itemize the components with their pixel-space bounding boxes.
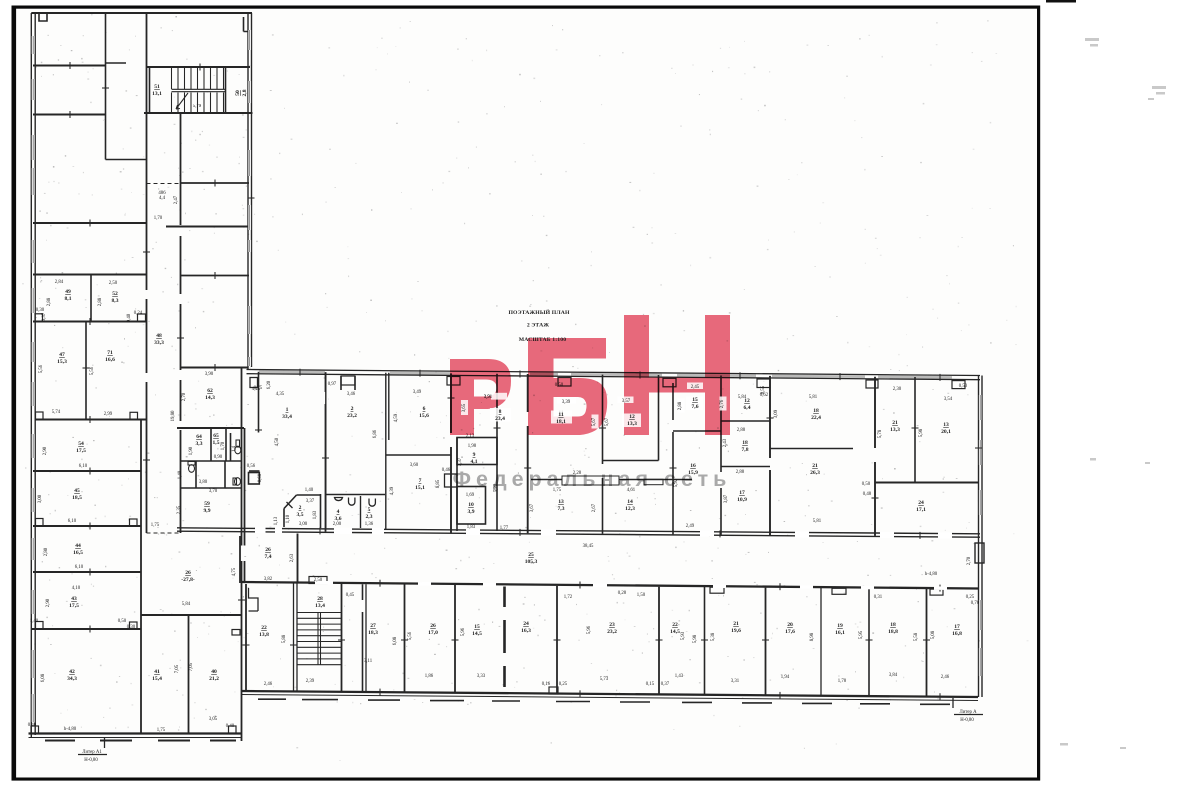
svg-text:5,84: 5,84 <box>738 395 747 400</box>
svg-text:2,45: 2,45 <box>691 385 700 390</box>
svg-text:15,6: 15,6 <box>419 413 429 419</box>
svg-text:23,4: 23,4 <box>495 416 505 422</box>
svg-text:64: 64 <box>196 434 202 440</box>
svg-text:105,3: 105,3 <box>525 559 538 565</box>
svg-text:23,2: 23,2 <box>347 413 357 419</box>
svg-text:4,39: 4,39 <box>390 486 395 495</box>
svg-text:3,39: 3,39 <box>562 400 571 405</box>
svg-text:0,50: 0,50 <box>959 384 968 389</box>
svg-text:5,98: 5,98 <box>919 428 924 437</box>
svg-text:16,5: 16,5 <box>73 550 83 556</box>
svg-text:15,4: 15,4 <box>152 676 162 682</box>
svg-text:5,58: 5,58 <box>914 632 919 641</box>
svg-text:0,55: 0,55 <box>761 385 766 394</box>
svg-text:1,77: 1,77 <box>500 526 509 531</box>
svg-text:3,09: 3,09 <box>774 409 779 418</box>
svg-text:5,78: 5,78 <box>878 429 883 438</box>
svg-text:13,1: 13,1 <box>152 91 162 97</box>
svg-text:33,4: 33,4 <box>282 414 292 420</box>
svg-text:1,36: 1,36 <box>365 522 374 527</box>
svg-text:0,68: 0,68 <box>258 473 263 482</box>
svg-text:3,9: 3,9 <box>468 509 475 515</box>
svg-text:41: 41 <box>154 669 160 675</box>
svg-text:26: 26 <box>185 570 191 576</box>
svg-text:5,84: 5,84 <box>182 602 191 607</box>
svg-text:26: 26 <box>430 623 436 629</box>
svg-text:14: 14 <box>627 499 633 505</box>
svg-text:38,45: 38,45 <box>583 544 594 549</box>
svg-text:0,37: 0,37 <box>661 682 670 687</box>
svg-text:3,37: 3,37 <box>458 457 463 466</box>
svg-text:23: 23 <box>609 622 615 628</box>
svg-text:2,88: 2,88 <box>98 297 103 306</box>
svg-text:19,80: 19,80 <box>171 410 176 421</box>
svg-text:3,80: 3,80 <box>199 480 208 485</box>
svg-text:7: 7 <box>419 478 422 484</box>
svg-text:18,1: 18,1 <box>556 419 566 425</box>
svg-text:3,65: 3,65 <box>462 403 467 412</box>
svg-text:2,30: 2,30 <box>893 387 902 392</box>
svg-text:5,88: 5,88 <box>282 634 287 643</box>
svg-text:21: 21 <box>892 420 898 426</box>
svg-text:2,43: 2,43 <box>723 438 728 447</box>
svg-text:2,90: 2,90 <box>43 446 48 455</box>
svg-text:0,48: 0,48 <box>863 492 872 497</box>
svg-text:-27,8-: -27,8- <box>181 577 195 583</box>
svg-text:8: 8 <box>499 409 502 415</box>
svg-text:2,47: 2,47 <box>174 195 179 204</box>
svg-text:1,10: 1,10 <box>286 514 291 523</box>
svg-text:3,00: 3,00 <box>38 494 43 503</box>
svg-text:3,31: 3,31 <box>731 679 740 684</box>
svg-text:5,96: 5,96 <box>587 625 592 634</box>
svg-text:19: 19 <box>837 623 843 629</box>
svg-text:47: 47 <box>59 352 65 358</box>
svg-text:1,72: 1,72 <box>564 595 573 600</box>
svg-text:13,3: 13,3 <box>627 421 637 427</box>
svg-text:5,73: 5,73 <box>600 677 609 682</box>
svg-text:1,40: 1,40 <box>305 488 314 493</box>
svg-text:7,8: 7,8 <box>742 447 749 453</box>
svg-text:14,5: 14,5 <box>472 631 482 637</box>
svg-text:h-4,80: h-4,80 <box>925 572 938 577</box>
svg-text:50: 50 <box>235 90 241 96</box>
svg-text:17,6: 17,6 <box>785 629 795 635</box>
svg-text:2,00: 2,00 <box>333 522 342 527</box>
svg-text:28: 28 <box>317 596 323 602</box>
svg-text:h-4,80: h-4,80 <box>64 727 77 732</box>
svg-text:2,46: 2,46 <box>264 682 273 687</box>
svg-text:0,70: 0,70 <box>971 601 980 606</box>
svg-text:45: 45 <box>74 488 80 494</box>
svg-text:6,08: 6,08 <box>393 636 398 645</box>
svg-text:5,74: 5,74 <box>52 410 61 415</box>
svg-text:3,84: 3,84 <box>889 673 898 678</box>
svg-text:17,0: 17,0 <box>428 630 438 636</box>
svg-text:3,5: 3,5 <box>297 512 304 518</box>
svg-text:2,3: 2,3 <box>366 514 373 520</box>
svg-text:11: 11 <box>558 412 563 418</box>
svg-text:9: 9 <box>473 452 476 458</box>
svg-text:0,25: 0,25 <box>559 682 568 687</box>
svg-text:2,35: 2,35 <box>177 505 182 514</box>
svg-text:2,88: 2,88 <box>736 470 745 475</box>
svg-text:0,40: 0,40 <box>28 723 37 728</box>
svg-text:2,88: 2,88 <box>47 297 52 306</box>
svg-text:4,25: 4,25 <box>252 387 261 392</box>
svg-text:33,3: 33,3 <box>154 340 164 346</box>
svg-text:6,20: 6,20 <box>267 380 272 389</box>
svg-text:4,50: 4,50 <box>275 437 280 446</box>
svg-text:1,4: 1,4 <box>232 445 237 452</box>
svg-text:3,49: 3,49 <box>413 390 422 395</box>
svg-text:3,54: 3,54 <box>944 397 953 402</box>
svg-text:1,75: 1,75 <box>157 728 166 733</box>
svg-text:15,1: 15,1 <box>415 485 425 491</box>
svg-text:1,86: 1,86 <box>425 674 434 679</box>
svg-text:1,98: 1,98 <box>468 444 477 449</box>
svg-text:0,24: 0,24 <box>134 311 143 316</box>
svg-text:1,40: 1,40 <box>30 619 39 624</box>
svg-text:2: 2 <box>299 505 302 511</box>
svg-text:24: 24 <box>918 500 924 506</box>
svg-text:26: 26 <box>265 547 271 553</box>
svg-text:2 ЭТАЖ: 2 ЭТАЖ <box>527 323 549 329</box>
svg-text:21: 21 <box>812 463 818 469</box>
svg-text:34,3: 34,3 <box>67 676 77 682</box>
svg-text:5,79: 5,79 <box>193 104 202 109</box>
svg-text:1,43: 1,43 <box>675 674 684 679</box>
svg-text:13: 13 <box>943 422 949 428</box>
svg-text:6: 6 <box>423 406 426 412</box>
svg-text:5,56: 5,56 <box>90 366 95 375</box>
svg-text:0,97: 0,97 <box>328 382 337 387</box>
svg-text:1,75: 1,75 <box>151 523 160 528</box>
svg-text:13,4: 13,4 <box>315 603 325 609</box>
svg-text:51: 51 <box>154 84 160 90</box>
svg-text:6,4: 6,4 <box>744 405 751 411</box>
svg-text:0,16: 0,16 <box>542 682 551 687</box>
svg-text:18: 18 <box>813 408 819 414</box>
svg-text:1: 1 <box>286 407 289 413</box>
svg-text:3,3: 3,3 <box>196 441 203 447</box>
svg-text:3,70: 3,70 <box>209 489 218 494</box>
svg-text:1,94: 1,94 <box>781 675 790 680</box>
svg-text:17,1: 17,1 <box>916 507 926 513</box>
svg-text:9,9: 9,9 <box>204 508 211 514</box>
svg-text:22,4: 22,4 <box>811 415 821 421</box>
svg-text:4,10: 4,10 <box>72 586 81 591</box>
svg-text:3,90: 3,90 <box>205 372 214 377</box>
svg-text:6,10: 6,10 <box>75 565 84 570</box>
svg-text:8,1: 8,1 <box>65 296 72 302</box>
svg-text:8,3: 8,3 <box>112 298 119 304</box>
svg-text:3,11: 3,11 <box>364 659 373 664</box>
svg-text:2,46: 2,46 <box>941 675 950 680</box>
svg-text:20: 20 <box>787 622 793 628</box>
svg-text:6,10: 6,10 <box>79 464 88 469</box>
svg-text:5,81: 5,81 <box>809 395 818 400</box>
svg-text:0,31: 0,31 <box>874 595 883 600</box>
svg-text:Федеральная сеть: Федеральная сеть <box>453 467 732 491</box>
svg-text:65: 65 <box>213 433 219 439</box>
svg-text:0,25: 0,25 <box>966 595 975 600</box>
svg-text:2,99: 2,99 <box>104 412 113 417</box>
svg-text:18: 18 <box>890 622 896 628</box>
svg-text:2,88: 2,88 <box>737 428 746 433</box>
svg-text:48: 48 <box>156 333 162 339</box>
svg-text:3,05: 3,05 <box>209 717 218 722</box>
svg-text:19,6: 19,6 <box>731 628 741 634</box>
svg-text:5,08: 5,08 <box>931 630 936 639</box>
svg-text:22: 22 <box>672 622 678 628</box>
svg-text:10: 10 <box>468 502 474 508</box>
svg-text:17: 17 <box>954 624 960 630</box>
svg-text:7,6: 7,6 <box>692 404 699 410</box>
svg-text:25: 25 <box>528 552 534 558</box>
svg-text:17,5: 17,5 <box>76 448 86 454</box>
svg-text:2,88: 2,88 <box>678 401 683 410</box>
svg-text:4,4: 4,4 <box>159 196 166 201</box>
svg-text:2,8: 2,8 <box>242 89 248 96</box>
svg-text:0,40: 0,40 <box>127 313 132 322</box>
svg-text:1,78: 1,78 <box>838 679 847 684</box>
svg-text:16,1: 16,1 <box>835 630 845 636</box>
svg-text:18,5: 18,5 <box>72 495 82 501</box>
svg-text:4,1: 4,1 <box>471 459 478 465</box>
svg-text:14,5: 14,5 <box>670 629 680 635</box>
svg-text:3,57: 3,57 <box>622 399 631 404</box>
svg-text:1,83: 1,83 <box>467 525 476 530</box>
svg-text:1,90: 1,90 <box>189 446 194 455</box>
svg-text:13,8: 13,8 <box>259 632 269 638</box>
svg-text:2,50: 2,50 <box>109 281 118 286</box>
svg-text:0,15: 0,15 <box>646 682 655 687</box>
svg-text:59: 59 <box>204 501 210 507</box>
svg-text:2,70: 2,70 <box>182 392 187 401</box>
svg-text:2,67: 2,67 <box>592 503 597 512</box>
svg-text:24: 24 <box>523 621 529 627</box>
svg-text:7,4: 7,4 <box>265 554 272 560</box>
svg-text:МАСШТАБ 1:100: МАСШТАБ 1:100 <box>519 337 567 343</box>
svg-text:71: 71 <box>107 350 113 356</box>
svg-text:0,46: 0,46 <box>442 468 451 473</box>
svg-text:18: 18 <box>742 440 748 446</box>
svg-text:2,90: 2,90 <box>46 598 51 607</box>
svg-text:1,50: 1,50 <box>637 593 646 598</box>
svg-text:1,40: 1,40 <box>178 470 183 479</box>
svg-text:17,5: 17,5 <box>69 603 79 609</box>
svg-text:6,10: 6,10 <box>68 519 77 524</box>
svg-text:0,50: 0,50 <box>862 482 871 487</box>
svg-text:43: 43 <box>71 596 77 602</box>
svg-text:0,56: 0,56 <box>247 464 256 469</box>
svg-text:16,8: 16,8 <box>952 631 962 637</box>
svg-text:18,3: 18,3 <box>368 630 378 636</box>
svg-text:Литер А1: Литер А1 <box>82 750 102 755</box>
svg-text:3,33: 3,33 <box>477 674 486 679</box>
svg-text:2: 2 <box>351 406 354 412</box>
svg-text:2,39: 2,39 <box>306 679 315 684</box>
svg-text:5,93: 5,93 <box>681 631 686 640</box>
svg-text:16,3: 16,3 <box>521 628 531 634</box>
svg-text:3,82: 3,82 <box>264 577 273 582</box>
svg-text:8,98: 8,98 <box>810 632 815 641</box>
svg-text:2,50: 2,50 <box>314 578 323 583</box>
svg-text:1,5: 1,5 <box>213 440 220 446</box>
svg-text:0,90: 0,90 <box>214 455 223 460</box>
svg-text:12,3: 12,3 <box>625 506 635 512</box>
svg-text:8,85: 8,85 <box>436 479 441 488</box>
svg-text:5,95: 5,95 <box>859 630 864 639</box>
svg-text:5,56: 5,56 <box>39 364 44 373</box>
svg-text:13: 13 <box>558 499 564 505</box>
svg-text:15: 15 <box>692 397 698 403</box>
svg-text:15: 15 <box>474 624 480 630</box>
svg-text:4,75: 4,75 <box>232 567 237 576</box>
svg-text:ПОЭТАЖНЫЙ ПЛАН: ПОЭТАЖНЫЙ ПЛАН <box>508 308 570 316</box>
svg-text:20,1: 20,1 <box>941 429 951 435</box>
svg-text:7,3: 7,3 <box>558 506 565 512</box>
svg-text:26,3: 26,3 <box>810 470 820 476</box>
svg-text:40: 40 <box>211 669 217 675</box>
svg-text:5,38: 5,38 <box>711 632 716 641</box>
svg-text:42: 42 <box>69 669 75 675</box>
svg-text:54: 54 <box>78 441 84 447</box>
svg-text:Литер А: Литер А <box>959 710 977 715</box>
svg-text:23,2: 23,2 <box>607 629 617 635</box>
svg-text:5,81: 5,81 <box>813 519 822 524</box>
svg-text:18,8: 18,8 <box>888 629 898 635</box>
svg-text:3,37: 3,37 <box>306 499 315 504</box>
svg-text:16,6: 16,6 <box>105 357 115 363</box>
svg-text:62: 62 <box>207 388 213 394</box>
svg-text:2,80: 2,80 <box>44 547 49 556</box>
svg-text:0,37: 0,37 <box>42 312 47 321</box>
svg-text:21: 21 <box>733 621 739 627</box>
svg-text:6,86: 6,86 <box>373 429 378 438</box>
svg-text:3,91: 3,91 <box>484 395 493 400</box>
svg-text:52: 52 <box>112 291 118 297</box>
svg-text:6,08: 6,08 <box>41 673 46 682</box>
svg-text:14,3: 14,3 <box>205 395 215 401</box>
svg-text:2,63: 2,63 <box>290 553 295 562</box>
svg-text:44: 44 <box>75 543 81 549</box>
svg-text:3,87: 3,87 <box>724 494 729 503</box>
svg-text:22: 22 <box>261 625 267 631</box>
svg-text:13,3: 13,3 <box>890 427 900 433</box>
svg-text:5,96: 5,96 <box>461 627 466 636</box>
svg-text:4,59: 4,59 <box>394 413 399 422</box>
svg-text:1,70: 1,70 <box>221 441 226 450</box>
svg-text:Н-0,80: Н-0,80 <box>960 718 974 723</box>
svg-text:17: 17 <box>739 490 745 496</box>
svg-text:0,30: 0,30 <box>127 625 136 630</box>
svg-text:1,70: 1,70 <box>154 216 163 221</box>
svg-text:5,56: 5,56 <box>408 631 413 640</box>
svg-text:2,84: 2,84 <box>55 280 64 285</box>
svg-text:2,49: 2,49 <box>686 524 695 529</box>
svg-text:4: 4 <box>337 509 340 515</box>
svg-text:3,46: 3,46 <box>347 392 356 397</box>
svg-text:27: 27 <box>370 623 376 629</box>
svg-text:5,98: 5,98 <box>693 634 698 643</box>
svg-text:49: 49 <box>65 289 71 295</box>
svg-text:0,28: 0,28 <box>618 591 627 596</box>
svg-text:2,76: 2,76 <box>720 399 725 408</box>
svg-text:4,35: 4,35 <box>276 392 285 397</box>
svg-text:3,60: 3,60 <box>410 463 419 468</box>
svg-text:2,70: 2,70 <box>967 556 972 565</box>
svg-text:7,05: 7,05 <box>189 662 194 671</box>
svg-text:3,00: 3,00 <box>299 522 308 527</box>
svg-text:5,67: 5,67 <box>592 417 597 426</box>
svg-text:1,13: 1,13 <box>274 516 279 525</box>
svg-text:0,30: 0,30 <box>36 308 45 313</box>
svg-text:0,45: 0,45 <box>346 593 355 598</box>
svg-text:3,67: 3,67 <box>530 503 535 512</box>
svg-text:0,40: 0,40 <box>226 724 235 729</box>
svg-text:7,05: 7,05 <box>175 664 180 673</box>
svg-text:5,67: 5,67 <box>605 417 610 426</box>
svg-text:1,69: 1,69 <box>466 493 475 498</box>
svg-text:0,50: 0,50 <box>118 619 127 624</box>
svg-text:12: 12 <box>629 414 635 420</box>
svg-text:15,3: 15,3 <box>57 359 67 365</box>
svg-text:5: 5 <box>368 507 371 513</box>
svg-text:1,83: 1,83 <box>313 510 318 519</box>
svg-text:21,2: 21,2 <box>209 676 219 682</box>
svg-text:Н-0,80: Н-0,80 <box>84 758 98 763</box>
svg-text:10,9: 10,9 <box>737 497 747 503</box>
